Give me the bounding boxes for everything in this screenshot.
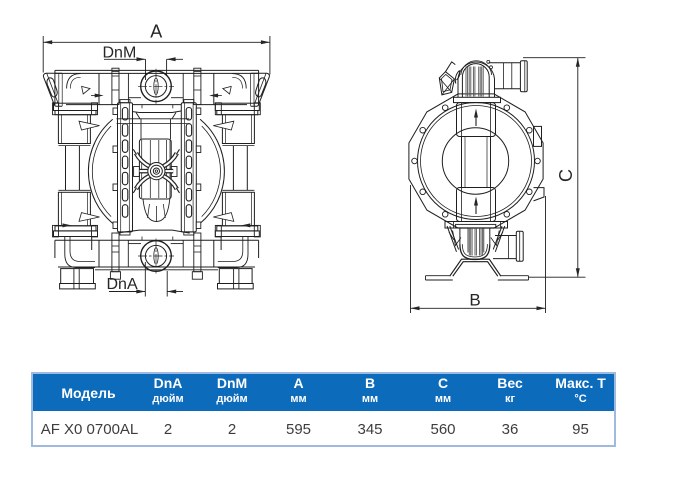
svg-text:B: B	[469, 291, 480, 310]
svg-text:A: A	[150, 22, 162, 42]
svg-text:DnA: DnA	[107, 276, 138, 293]
svg-text:C: C	[556, 169, 576, 182]
svg-text:DnM: DnM	[103, 45, 137, 62]
